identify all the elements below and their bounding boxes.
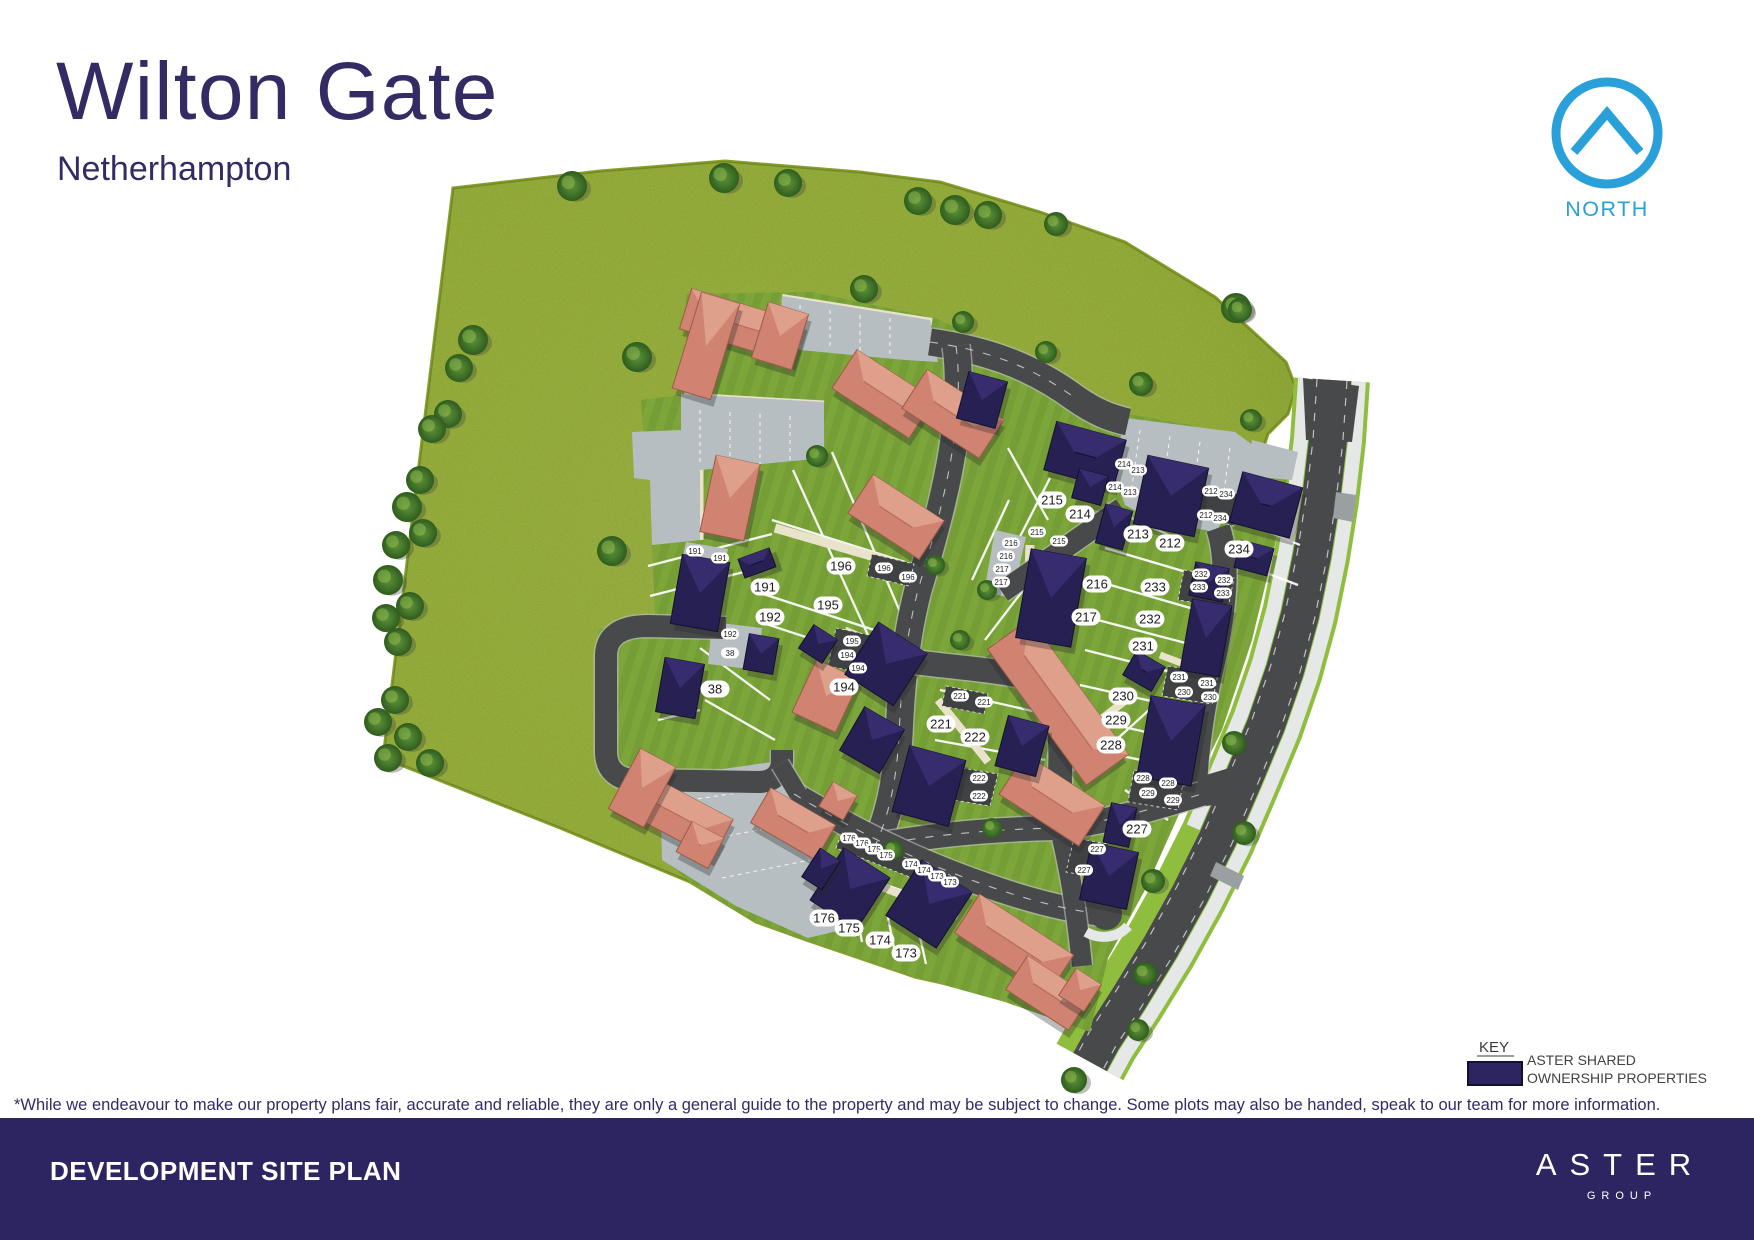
svg-text:174: 174 (869, 933, 891, 948)
svg-text:228: 228 (1136, 774, 1150, 783)
svg-text:216: 216 (1086, 577, 1108, 592)
svg-text:Netherhampton: Netherhampton (57, 150, 291, 188)
svg-text:227: 227 (1126, 822, 1148, 837)
svg-text:215: 215 (1052, 537, 1066, 546)
svg-text:229: 229 (1141, 789, 1155, 798)
svg-text:221: 221 (953, 692, 967, 701)
svg-text:38: 38 (708, 682, 722, 697)
svg-text:KEY: KEY (1479, 1039, 1509, 1056)
svg-text:232: 232 (1139, 612, 1161, 627)
svg-text:*While we endeavour to make ou: *While we endeavour to make our property… (14, 1096, 1660, 1114)
svg-text:215: 215 (1041, 493, 1063, 508)
svg-text:191: 191 (713, 554, 727, 563)
svg-text:227: 227 (1077, 866, 1091, 875)
svg-text:NORTH: NORTH (1565, 197, 1649, 221)
svg-text:ASTER: ASTER (1536, 1147, 1704, 1182)
svg-text:38: 38 (726, 649, 735, 658)
svg-text:213: 213 (1123, 488, 1137, 497)
svg-text:234: 234 (1213, 514, 1227, 523)
svg-text:173: 173 (895, 946, 917, 961)
svg-text:230: 230 (1203, 693, 1217, 702)
svg-text:173: 173 (943, 878, 957, 887)
svg-text:233: 233 (1216, 589, 1230, 598)
svg-text:194: 194 (851, 664, 865, 673)
svg-text:194: 194 (833, 680, 855, 695)
svg-text:DEVELOPMENT SITE PLAN: DEVELOPMENT SITE PLAN (50, 1156, 401, 1186)
svg-text:192: 192 (723, 630, 737, 639)
svg-text:233: 233 (1192, 583, 1206, 592)
svg-text:214: 214 (1069, 507, 1091, 522)
svg-text:234: 234 (1228, 542, 1250, 557)
svg-text:222: 222 (972, 792, 986, 801)
svg-text:196: 196 (830, 559, 852, 574)
svg-text:232: 232 (1217, 576, 1231, 585)
svg-text:196: 196 (877, 564, 891, 573)
svg-text:229: 229 (1166, 796, 1180, 805)
svg-text:196: 196 (901, 573, 915, 582)
svg-text:221: 221 (977, 698, 991, 707)
svg-text:215: 215 (1030, 528, 1044, 537)
svg-text:228: 228 (1161, 779, 1175, 788)
svg-text:195: 195 (817, 598, 839, 613)
svg-text:Wilton Gate: Wilton Gate (56, 46, 499, 137)
svg-text:192: 192 (759, 610, 781, 625)
svg-text:213: 213 (1131, 466, 1145, 475)
svg-text:214: 214 (1117, 460, 1131, 469)
svg-text:194: 194 (840, 651, 854, 660)
svg-text:191: 191 (754, 580, 776, 595)
svg-text:212: 212 (1204, 487, 1218, 496)
svg-text:213: 213 (1127, 527, 1149, 542)
svg-text:214: 214 (1108, 483, 1122, 492)
svg-text:217: 217 (995, 565, 1009, 574)
svg-text:233: 233 (1144, 580, 1166, 595)
svg-text:228: 228 (1100, 738, 1122, 753)
svg-text:222: 222 (964, 730, 986, 745)
svg-text:195: 195 (845, 637, 859, 646)
svg-text:227: 227 (1090, 845, 1104, 854)
svg-text:191: 191 (688, 547, 702, 556)
svg-text:216: 216 (999, 552, 1013, 561)
svg-text:OWNERSHIP PROPERTIES: OWNERSHIP PROPERTIES (1527, 1070, 1707, 1086)
svg-text:216: 216 (1004, 539, 1018, 548)
svg-text:231: 231 (1172, 673, 1186, 682)
svg-text:ASTER SHARED: ASTER SHARED (1527, 1052, 1636, 1068)
svg-text:222: 222 (972, 774, 986, 783)
svg-text:212: 212 (1159, 536, 1181, 551)
svg-text:221: 221 (930, 717, 952, 732)
svg-text:175: 175 (838, 921, 860, 936)
svg-text:231: 231 (1132, 639, 1154, 654)
svg-text:231: 231 (1200, 679, 1214, 688)
svg-text:232: 232 (1194, 570, 1208, 579)
svg-text:229: 229 (1105, 713, 1127, 728)
svg-text:217: 217 (994, 578, 1008, 587)
svg-text:GROUP: GROUP (1587, 1190, 1657, 1202)
svg-text:230: 230 (1177, 688, 1191, 697)
svg-text:176: 176 (813, 911, 835, 926)
svg-text:175: 175 (879, 851, 893, 860)
svg-text:217: 217 (1075, 610, 1097, 625)
svg-text:230: 230 (1112, 689, 1134, 704)
svg-text:234: 234 (1219, 490, 1233, 499)
